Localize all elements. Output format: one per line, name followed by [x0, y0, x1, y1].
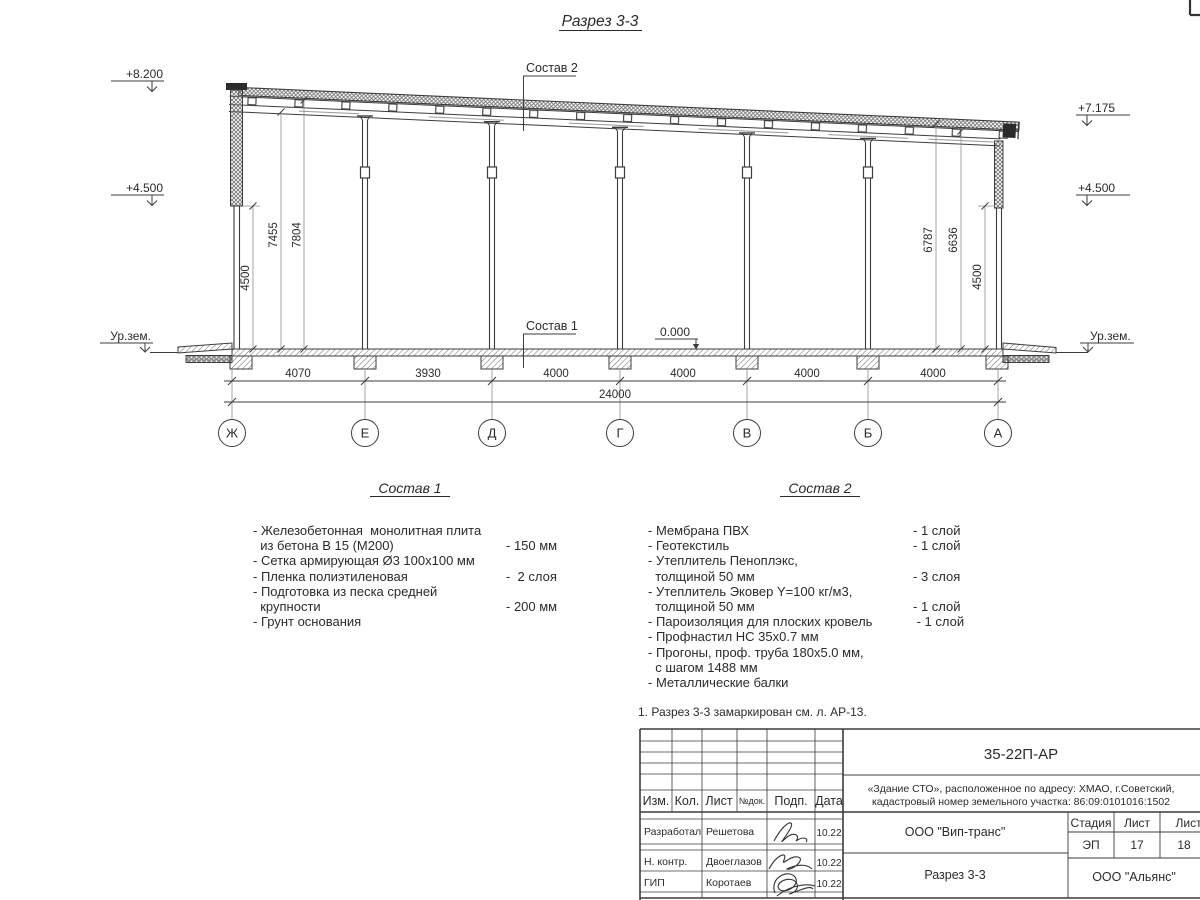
sostav2-leader: Состав 2: [523, 61, 578, 131]
list-item: с шагом 1488 мм: [648, 660, 988, 675]
stage-value: ЭП: [1082, 838, 1099, 852]
col-header-izm: Изм.: [643, 794, 670, 808]
drawing-title: Разрез 3-3: [559, 13, 642, 31]
axis-label: Д: [488, 426, 497, 441]
list-item: - Прогоны, проф. труба 180х5.0 мм,: [648, 645, 988, 660]
vdim-value: 4500: [240, 265, 252, 291]
axis-label: Б: [864, 426, 873, 441]
left-parapet-cap: [226, 83, 247, 90]
row-name: Двоеглазов: [706, 856, 762, 868]
left-wall-panel: [231, 90, 243, 206]
zero-label: 0.000: [660, 325, 690, 339]
list-item: - Грунт основания: [253, 614, 583, 629]
vdim-value: 6787: [923, 227, 935, 253]
leader-text: Состав 2: [526, 61, 578, 75]
elevation-value: +4.500: [1078, 181, 1115, 195]
sheet-note: 1. Разрез 3-3 замаркирован см. л. АР-13.: [638, 705, 867, 719]
signature-gip: [774, 874, 815, 896]
elevation-value: +4.500: [126, 181, 163, 195]
ground-level-mark: Ур.зем.: [100, 329, 153, 352]
stamp-grid-lines: [640, 729, 843, 898]
sheet-number: 17: [1130, 838, 1144, 852]
object-name-line1: «Здание СТО», расположенное по адресу: Х…: [868, 783, 1175, 795]
bay-dim: 4000: [670, 368, 696, 380]
sheets-total: 18: [1177, 838, 1191, 852]
frame-corner: [1190, 0, 1200, 15]
col-header-ndok: №док.: [739, 796, 765, 806]
row-role: ГИП: [644, 877, 665, 889]
axis-label: Ж: [226, 426, 238, 441]
drawing-sheet: Разрез 3-3: [0, 0, 1200, 900]
bay-dim: 3930: [415, 368, 441, 380]
list-item: из бетона В 15 (М200)- 150 мм: [253, 538, 583, 553]
column: [357, 116, 373, 349]
list-item: - Металлические балки: [648, 675, 988, 690]
left-sand-bed: [186, 356, 232, 363]
right-sand-bed: [1003, 356, 1049, 363]
list-item: - Подготовка из песка средней: [253, 584, 583, 599]
sostav2-list: - Мембрана ПВХ- 1 слой - Геотекстиль- 1 …: [648, 523, 988, 690]
axis-label: В: [743, 426, 752, 441]
page-title: Разрез 3-3: [562, 13, 639, 30]
elevation-mark: +4.500: [1076, 181, 1130, 206]
axis-bubbles: Ж Е Д Г В Б А: [219, 420, 1012, 447]
right-wall-panel: [995, 141, 1004, 208]
ground-label: Ур.зем.: [110, 329, 151, 343]
left-wall-column: [234, 206, 240, 349]
row-date: 10.22: [816, 828, 841, 839]
right-apron: [1003, 343, 1056, 353]
doc-number: 35-22П-АР: [984, 746, 1058, 763]
axis-label: Г: [616, 426, 623, 441]
column: [860, 138, 876, 349]
signature-razrabotal: [774, 823, 807, 842]
axis-label: А: [994, 426, 1003, 441]
roof-assembly: [229, 87, 1019, 147]
vdim-value: 4500: [972, 264, 984, 290]
sheet-label: Лист: [1124, 816, 1151, 830]
title-block: 35-22П-АР «Здание СТО», расположенное по…: [638, 728, 1200, 900]
list-item: - Пленка полиэтиленовая- 2 слоя: [253, 569, 583, 584]
right-wall-column: [997, 208, 1002, 349]
elevation-mark: +7.175: [1076, 101, 1130, 126]
bay-dim: 4000: [543, 368, 569, 380]
elevation-value: +8.200: [126, 67, 163, 81]
horizontal-dimensions: 4070 3930 4000 4000 4000 4000 24000: [224, 368, 1006, 419]
list-item: - Утеплитель Эковер Y=100 кг/м3,: [648, 584, 988, 599]
bay-dim: 4000: [794, 368, 820, 380]
list-item: - Геотекстиль- 1 слой: [648, 538, 988, 553]
floor-slab: [232, 349, 1003, 356]
col-header-list: Лист: [705, 794, 732, 808]
list-item: - Мембрана ПВХ- 1 слой: [648, 523, 988, 538]
column: [484, 122, 500, 349]
row-name: Решетова: [706, 826, 754, 838]
signature-nkontr: [769, 855, 812, 869]
ground-level-mark: Ур.зем.: [1080, 329, 1134, 352]
vdim-value: 7455: [268, 222, 280, 248]
roof-fascia: [1018, 122, 1019, 139]
axis-label: Е: [361, 426, 370, 441]
col-header-kol: Кол.: [675, 794, 700, 808]
foundation-blocks: [230, 356, 1008, 369]
dim-ticks: [250, 97, 989, 353]
leader-text: Состав 1: [526, 319, 578, 333]
row-role: Разработал: [644, 826, 701, 838]
vdim-value: 6636: [948, 227, 960, 253]
object-name-line2: кадастровый номер земельного участка: 86…: [872, 796, 1170, 808]
roof-end-purlin: [1003, 123, 1017, 138]
left-apron: [178, 343, 232, 353]
list-item: - Железобетонная монолитная плита: [253, 523, 583, 538]
floor-slab-group: [150, 343, 1088, 369]
sostav1-heading: Состав 1: [370, 480, 450, 497]
sheets-label: Листов: [1176, 816, 1200, 830]
bay-dim: 4000: [920, 368, 946, 380]
sostav1-leader: Состав 1: [523, 319, 578, 368]
section-drawing: Разрез 3-3: [0, 0, 1200, 470]
interior-columns: [357, 116, 876, 349]
list-item: - Профнастил НС 35х0.7 мм: [648, 629, 988, 644]
list-item: крупности- 200 мм: [253, 599, 583, 614]
org-customer: ООО "Альянс": [1092, 870, 1176, 884]
list-item: - Сетка армирующая Ø3 100х100 мм: [253, 553, 583, 568]
row-role: Н. контр.: [644, 856, 687, 868]
ground-label: Ур.зем.: [1090, 329, 1131, 343]
column: [739, 133, 755, 349]
sostav1-list: - Железобетонная монолитная плита из бет…: [253, 523, 583, 629]
org-design: ООО "Вип-транс": [905, 825, 1006, 839]
col-header-podp: Подп.: [774, 794, 807, 808]
vdim-value: 7804: [292, 222, 304, 248]
list-item: - Утеплитель Пеноплэкс,: [648, 553, 988, 568]
row-date: 10.22: [816, 879, 841, 890]
sostav2-heading: Состав 2: [780, 480, 860, 497]
list-item: - Пароизоляция для плоских кровель - 1 с…: [648, 614, 988, 629]
col-header-data: Дата: [815, 794, 843, 808]
bay-dim: 4070: [285, 368, 311, 380]
row-name: Коротаев: [706, 877, 752, 889]
stage-label: Стадия: [1071, 816, 1112, 830]
column: [612, 127, 628, 349]
elevation-value: +7.175: [1078, 101, 1115, 115]
elevation-mark: +8.200: [111, 67, 164, 92]
zero-level-mark: 0.000: [655, 325, 699, 350]
total-dim: 24000: [599, 389, 631, 401]
row-date: 10.22: [816, 858, 841, 869]
list-item: толщиной 50 мм- 1 слой: [648, 599, 988, 614]
list-item: толщиной 50 мм- 3 слоя: [648, 569, 988, 584]
sheet-name: Разрез 3-3: [924, 868, 985, 882]
elevation-mark: +4.500: [111, 181, 164, 206]
